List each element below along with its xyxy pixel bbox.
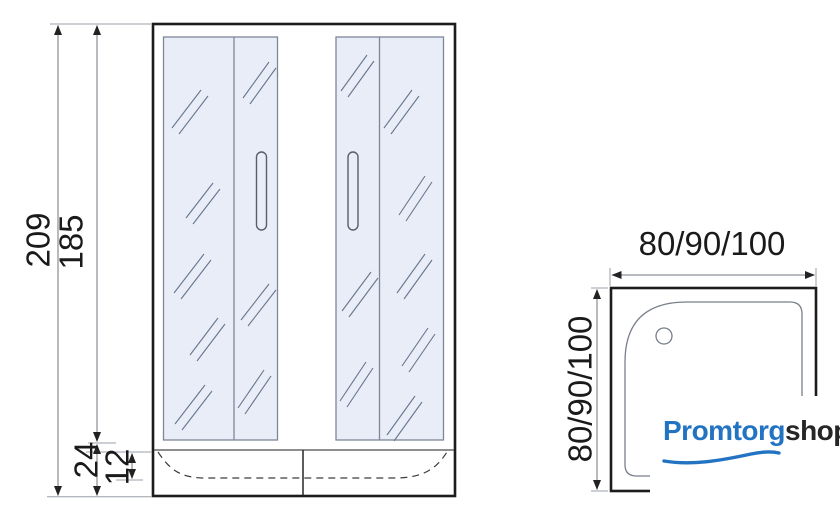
logo-text-primary: Promtorg — [663, 415, 785, 446]
door-handle-icon — [257, 152, 267, 230]
door-handle-icon — [348, 152, 358, 230]
dim-label-tray-depth-plan: 80/90/100 — [562, 316, 599, 463]
logo-swoosh-icon — [661, 449, 783, 465]
shower-enclosure-dimension-diagram: 209 185 24 12 — [0, 0, 840, 519]
dim-label-tray-width: 80/90/100 — [639, 225, 786, 262]
glass-door-left-group — [164, 37, 278, 440]
dim-label-door-height: 185 — [53, 214, 90, 269]
front-view: 209 185 24 12 — [20, 24, 455, 497]
logo-wordmark: Promtorgshop — [663, 417, 840, 445]
drain-hole-icon — [656, 328, 672, 344]
dim-label-total-height: 209 — [20, 212, 57, 267]
glass-panel — [336, 37, 444, 440]
logo-text-secondary: shop — [785, 415, 840, 446]
dim-label-tray-depth: 12 — [99, 449, 136, 486]
promtorgshop-logo: Promtorgshop — [650, 396, 840, 519]
glass-panel — [164, 37, 278, 440]
glass-door-right-group — [336, 37, 444, 440]
